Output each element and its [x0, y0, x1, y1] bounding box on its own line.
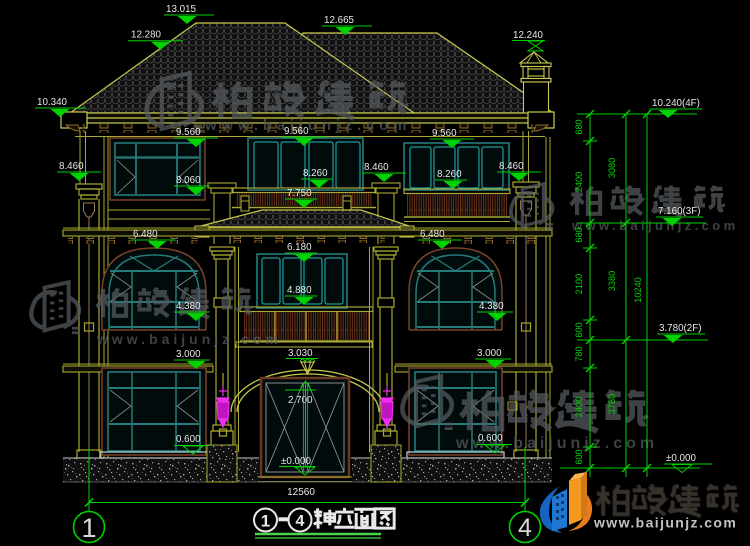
svg-text:4.380: 4.380 [176, 301, 201, 312]
svg-text:600: 600 [574, 449, 584, 464]
svg-text:±0.000: ±0.000 [281, 456, 311, 467]
svg-text:3780: 3780 [607, 394, 617, 414]
svg-text:2400: 2400 [574, 397, 584, 417]
svg-text:1: 1 [81, 513, 96, 543]
svg-text:780: 780 [574, 346, 584, 361]
svg-text:4: 4 [296, 513, 305, 530]
svg-text:12560: 12560 [287, 487, 315, 498]
svg-text:8.260: 8.260 [303, 168, 328, 179]
svg-text:10240: 10240 [633, 277, 643, 303]
svg-text:3.030: 3.030 [288, 348, 313, 359]
svg-text:9.560: 9.560 [284, 126, 309, 137]
svg-text:8.260: 8.260 [437, 169, 462, 180]
svg-text:4: 4 [518, 514, 532, 542]
svg-text:0.600: 0.600 [176, 434, 201, 445]
svg-text:3.780(2F): 3.780(2F) [659, 323, 701, 334]
svg-text:3080: 3080 [607, 158, 617, 178]
svg-text:4.380: 4.380 [479, 301, 504, 312]
svg-text:8.060: 8.060 [176, 175, 201, 186]
svg-text:3380: 3380 [607, 271, 617, 291]
svg-text:2.700: 2.700 [288, 395, 313, 406]
svg-text:±0.000: ±0.000 [666, 453, 696, 464]
svg-text:6.480: 6.480 [133, 229, 158, 240]
svg-text:7.750: 7.750 [287, 188, 312, 199]
svg-text:www.baijunjz.com: www.baijunjz.com [571, 218, 739, 233]
svg-text:12.280: 12.280 [131, 30, 162, 41]
svg-text:9.560: 9.560 [176, 127, 201, 138]
svg-text:8.460: 8.460 [364, 162, 389, 173]
svg-text:4.880: 4.880 [287, 285, 312, 296]
svg-text:6.180: 6.180 [287, 242, 312, 253]
svg-text:8.460: 8.460 [499, 161, 524, 172]
svg-text:www.baijunjz.com: www.baijunjz.com [593, 515, 737, 531]
svg-text:www.baijunjz.com: www.baijunjz.com [96, 331, 282, 347]
svg-text:2400: 2400 [574, 172, 584, 192]
svg-text:10.340: 10.340 [37, 97, 68, 108]
svg-text:680: 680 [574, 227, 584, 242]
svg-text:2100: 2100 [574, 274, 584, 294]
svg-text:0.600: 0.600 [478, 433, 503, 444]
svg-text:1: 1 [261, 512, 270, 531]
svg-text:8.460: 8.460 [59, 161, 84, 172]
svg-text:12.665: 12.665 [324, 15, 355, 26]
svg-text:600: 600 [574, 322, 584, 337]
svg-text:9.560: 9.560 [432, 128, 457, 139]
svg-text:13.015: 13.015 [166, 4, 197, 15]
svg-text:6.480: 6.480 [420, 229, 445, 240]
svg-text:3.000: 3.000 [477, 348, 502, 359]
svg-text:10.240(4F): 10.240(4F) [652, 98, 700, 109]
svg-text:7.160(3F): 7.160(3F) [658, 206, 700, 217]
svg-text:3.000: 3.000 [176, 349, 201, 360]
svg-text:12.240: 12.240 [513, 30, 544, 41]
svg-text:680: 680 [574, 119, 584, 134]
